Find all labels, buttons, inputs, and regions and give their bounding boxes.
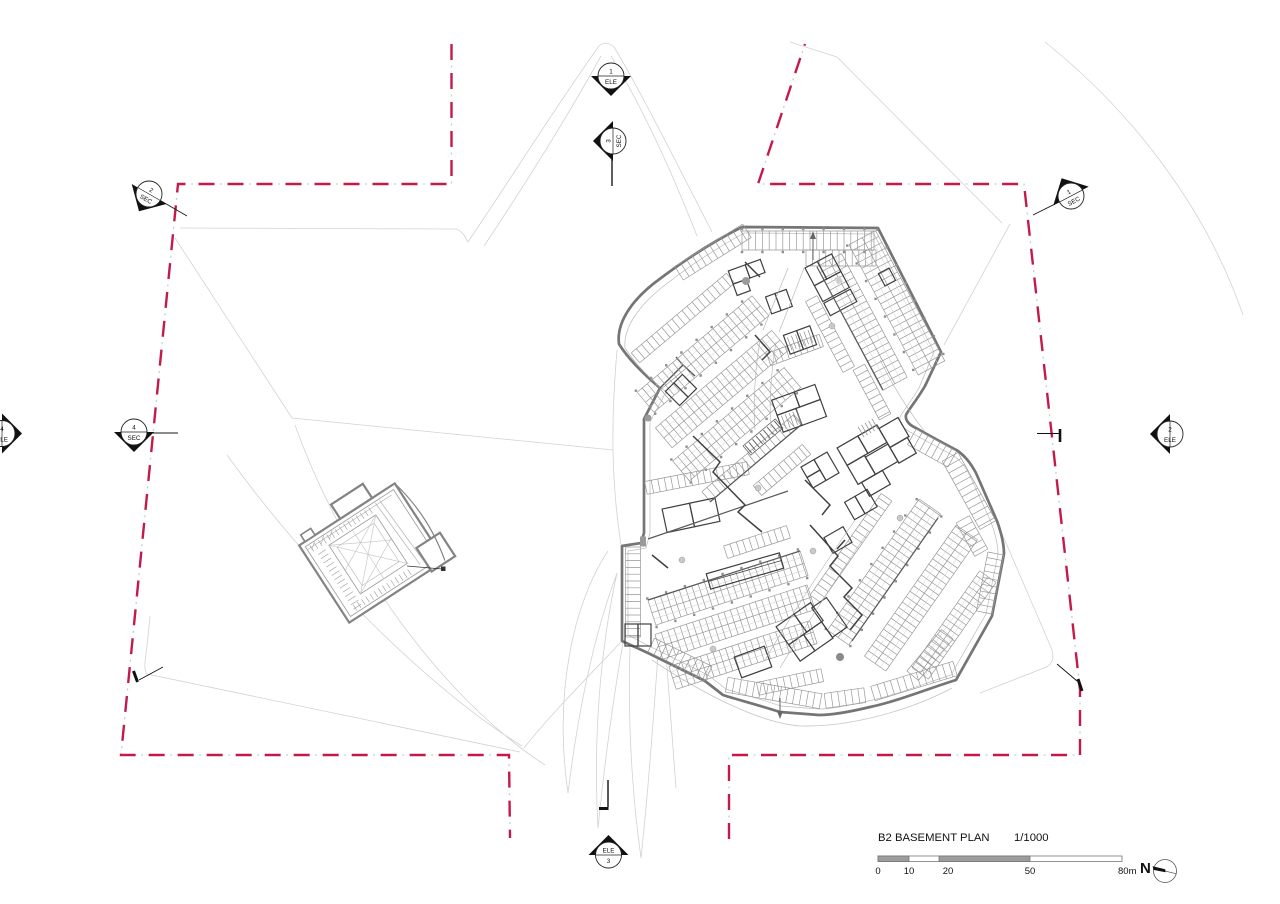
svg-text:SEC: SEC — [128, 435, 141, 442]
svg-text:B2 BASEMENT PLAN: B2 BASEMENT PLAN — [878, 832, 990, 844]
svg-text:N: N — [1140, 860, 1151, 877]
svg-text:50: 50 — [1025, 866, 1036, 877]
svg-text:10: 10 — [904, 866, 915, 877]
svg-text:ELE: ELE — [603, 848, 615, 855]
svg-text:0: 0 — [875, 866, 880, 877]
svg-text:20: 20 — [943, 866, 954, 877]
svg-text:1: 1 — [609, 69, 613, 76]
svg-text:4: 4 — [132, 425, 136, 432]
svg-text:ELE: ELE — [0, 437, 8, 444]
svg-text:3: 3 — [607, 858, 611, 865]
svg-text:1/1000: 1/1000 — [1014, 832, 1049, 844]
svg-text:3: 3 — [606, 139, 613, 143]
svg-text:ELE: ELE — [1164, 437, 1176, 444]
svg-text:4: 4 — [0, 426, 4, 433]
svg-text:2: 2 — [1168, 427, 1172, 434]
svg-text:ELE: ELE — [605, 79, 617, 86]
svg-text:80m: 80m — [1118, 866, 1137, 877]
svg-text:SEC: SEC — [616, 134, 623, 147]
